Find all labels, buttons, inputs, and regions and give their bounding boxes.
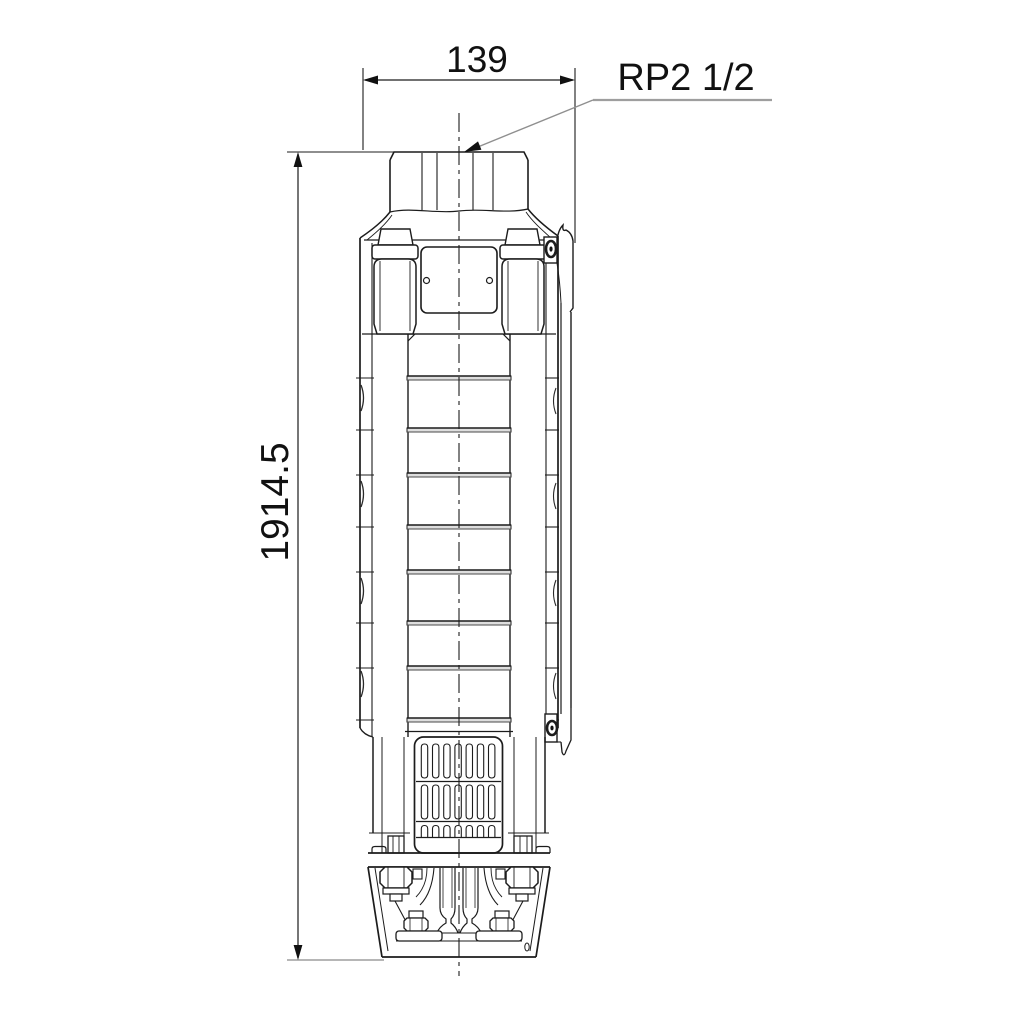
pump-dimensional-drawing: 139 1914.5 RP2 1/2 xyxy=(0,0,1024,1024)
dimension-width: 139 xyxy=(363,39,575,243)
motor-bolt-right xyxy=(496,867,538,901)
strainer-slots xyxy=(421,744,495,838)
height-dimension-label: 1914.5 xyxy=(254,442,297,561)
dimension-height: 1914.5 xyxy=(254,152,394,960)
connection-label: RP2 1/2 xyxy=(617,57,754,99)
connection-leader: RP2 1/2 xyxy=(464,57,772,152)
arrowhead-top xyxy=(294,152,303,167)
leader-arrowhead xyxy=(464,141,481,152)
arrowhead-bottom xyxy=(294,945,303,960)
width-dimension-label: 139 xyxy=(446,39,508,80)
cable-guard-clamp-left xyxy=(372,229,418,334)
drain-hole xyxy=(525,943,529,951)
arrowhead-left xyxy=(363,76,378,85)
motor-bolt-left xyxy=(380,867,422,901)
arrowhead-right xyxy=(560,76,575,85)
cable-guard-clamp-right xyxy=(500,229,546,334)
drawing-canvas: 139 1914.5 RP2 1/2 xyxy=(0,0,1024,1024)
pump-body xyxy=(356,152,573,957)
motor-nut-left xyxy=(404,911,428,931)
motor-nut-right xyxy=(490,911,514,931)
leader-line xyxy=(468,100,593,151)
